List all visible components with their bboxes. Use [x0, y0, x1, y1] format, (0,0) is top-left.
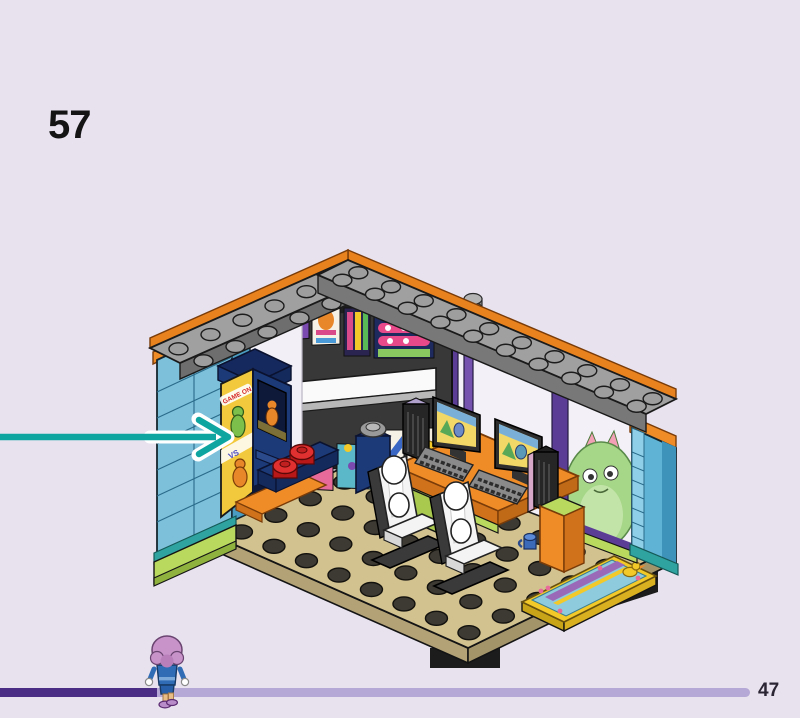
- lego-model-illustration: W: [0, 0, 800, 718]
- right-pillar: [630, 416, 678, 575]
- instruction-page: 57: [0, 0, 800, 718]
- page-number: 47: [758, 680, 779, 702]
- progress-character: [137, 633, 199, 709]
- progress-fill: [0, 688, 157, 697]
- mini-doll: [145, 636, 188, 708]
- desk-end-cabinet: [540, 497, 584, 572]
